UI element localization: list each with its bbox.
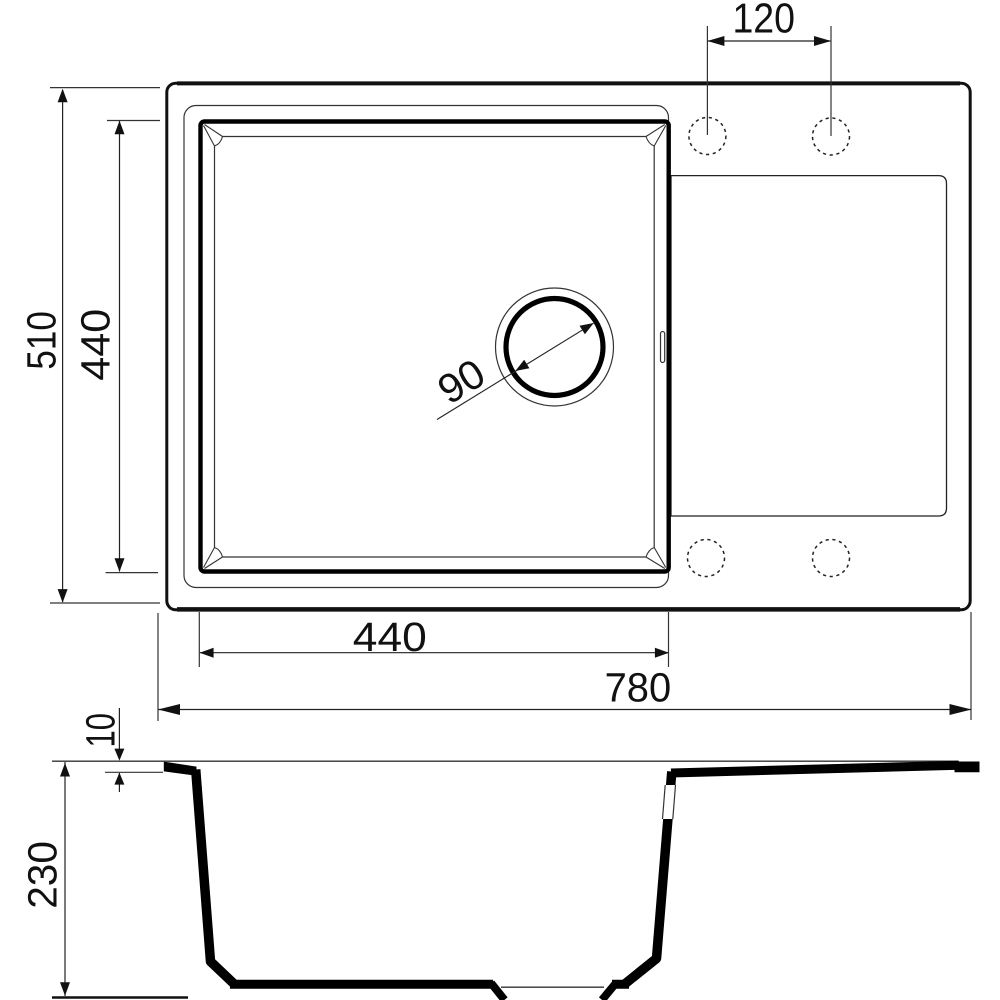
svg-text:440: 440 [72,309,118,381]
svg-text:230: 230 [20,841,66,909]
svg-text:780: 780 [605,664,672,710]
svg-text:10: 10 [78,713,124,748]
svg-text:440: 440 [353,614,427,660]
svg-text:120: 120 [732,0,795,42]
svg-text:510: 510 [19,311,65,369]
